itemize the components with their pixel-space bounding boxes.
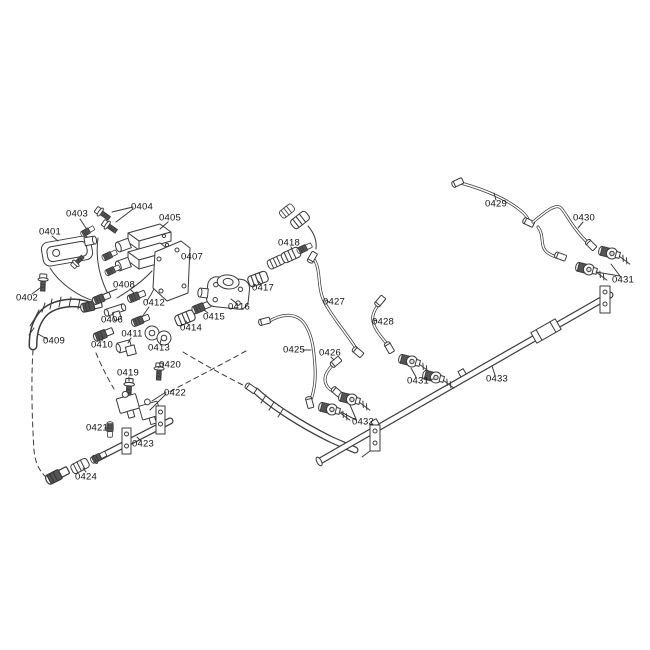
part-label-0430[interactable]: 0430 [573,213,595,224]
parts-diagram: 0401040204030404040504060407040804090410… [0,0,650,650]
part-label-0415[interactable]: 0415 [203,312,225,323]
part-label-0406[interactable]: 0406 [101,315,123,326]
part-0431-nozzles [397,245,632,389]
part-label-0407[interactable]: 0407 [181,252,203,263]
part-label-0419[interactable]: 0419 [117,368,139,379]
part-label-0422[interactable]: 0422 [164,388,186,399]
part-label-0404[interactable]: 0404 [131,202,153,213]
part-label-0426[interactable]: 0426 [319,348,341,359]
part-label-0424[interactable]: 0424 [75,472,97,483]
part-0425-fuel-pipe [258,315,315,408]
part-label-0413[interactable]: 0413 [148,343,170,354]
part-label-0425[interactable]: 0425 [283,345,305,356]
part-0412-coupling [130,313,150,327]
part-0433-manifold-rail [315,286,610,467]
part-label-0431[interactable]: 0431 [612,275,634,286]
part-0401-pressure-switch [40,234,101,275]
part-label-0409[interactable]: 0409 [43,336,65,347]
part-0411-elbow-fitting [115,339,136,358]
part-label-0417[interactable]: 0417 [252,283,274,294]
part-label-0431[interactable]: 0431 [407,376,429,387]
part-label-0423[interactable]: 0423 [132,439,154,450]
part-label-0408[interactable]: 0408 [113,280,135,291]
part-label-0403[interactable]: 0403 [66,209,88,220]
part-label-0405[interactable]: 0405 [159,213,181,224]
part-label-0401[interactable]: 0401 [39,227,61,238]
part-label-0402[interactable]: 0402 [16,293,38,304]
part-label-0418[interactable]: 0418 [278,238,300,249]
part-label-0420[interactable]: 0420 [159,360,181,371]
part-label-0410[interactable]: 0410 [91,340,113,351]
part-0403-fitting [80,225,96,237]
part-label-0427[interactable]: 0427 [323,297,345,308]
diagram-artwork [0,0,650,650]
part-label-0432[interactable]: 0432 [352,417,374,428]
part-label-0414[interactable]: 0414 [180,323,202,334]
part-0418-hose-assembly [266,203,313,270]
part-label-0416[interactable]: 0416 [228,302,250,313]
part-label-0421[interactable]: 0421 [86,423,108,434]
part-0404-bolts [93,205,119,235]
part-label-0433[interactable]: 0433 [486,374,508,385]
part-0426-fuel-pipe [325,356,343,398]
part-label-0412[interactable]: 0412 [143,298,165,309]
part-label-0429[interactable]: 0429 [485,199,507,210]
part-0407-bracket [153,241,190,301]
part-label-0428[interactable]: 0428 [372,317,394,328]
part-label-0411[interactable]: 0411 [121,329,142,340]
